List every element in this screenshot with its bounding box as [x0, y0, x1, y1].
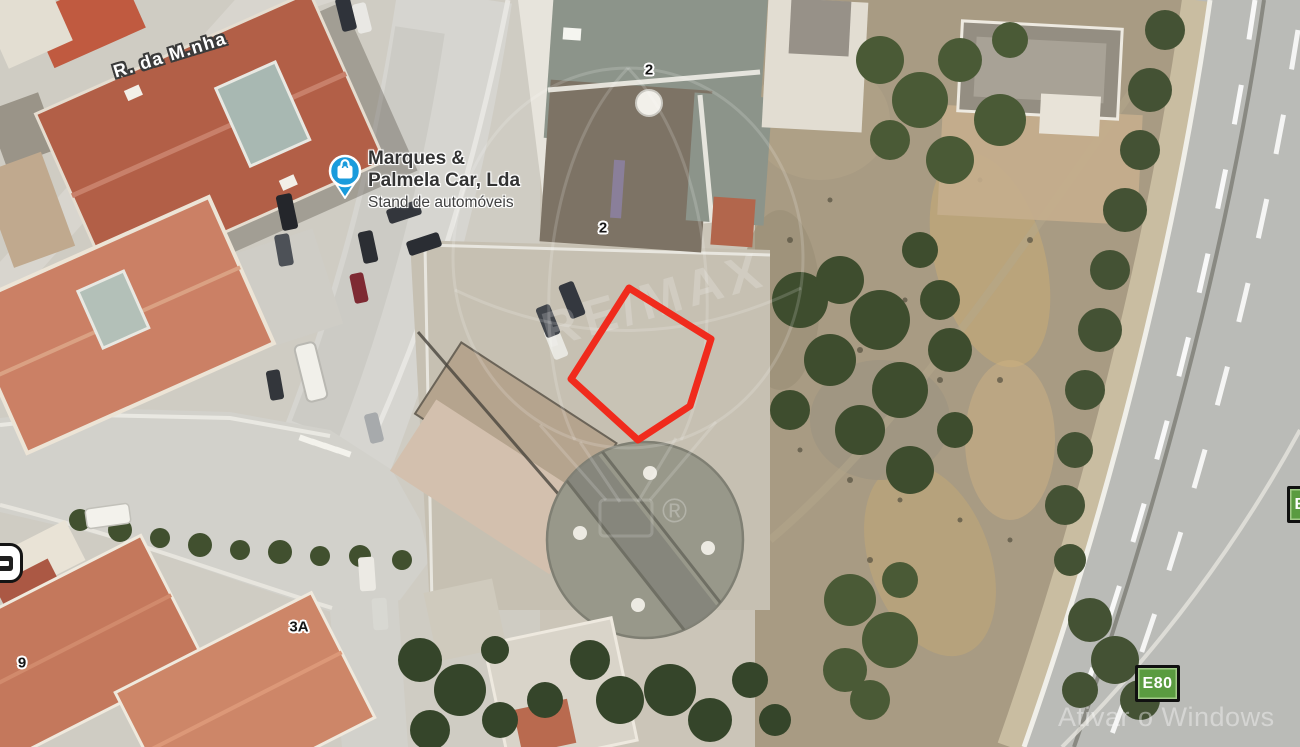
address-label-9: 9	[18, 655, 26, 672]
route-badge-e80-edge: E80	[1287, 486, 1300, 523]
poi-name-line2[interactable]: Palmela Car, Lda	[368, 170, 520, 192]
address-label-3a: 3A	[289, 619, 308, 636]
os-activation-watermark: Ativar o Windows	[1058, 702, 1275, 733]
address-label-2-top: 2	[645, 62, 653, 79]
speed-camera-icon[interactable]	[0, 543, 23, 583]
satellite-map-view[interactable]: RE/MAX ® R. da M.nha Marques & Palmela C…	[0, 0, 1300, 747]
address-label-2-mid: 2	[599, 220, 607, 237]
satellite-imagery	[0, 0, 1300, 747]
poi-label[interactable]: Marques & Palmela Car, Lda Stand de auto…	[368, 148, 520, 213]
poi-category: Stand de automóveis	[368, 192, 520, 213]
speed-camera-icon-inner	[0, 556, 13, 571]
poi-name-line1[interactable]: Marques &	[368, 148, 520, 170]
route-badge-e80: E80	[1135, 665, 1180, 702]
